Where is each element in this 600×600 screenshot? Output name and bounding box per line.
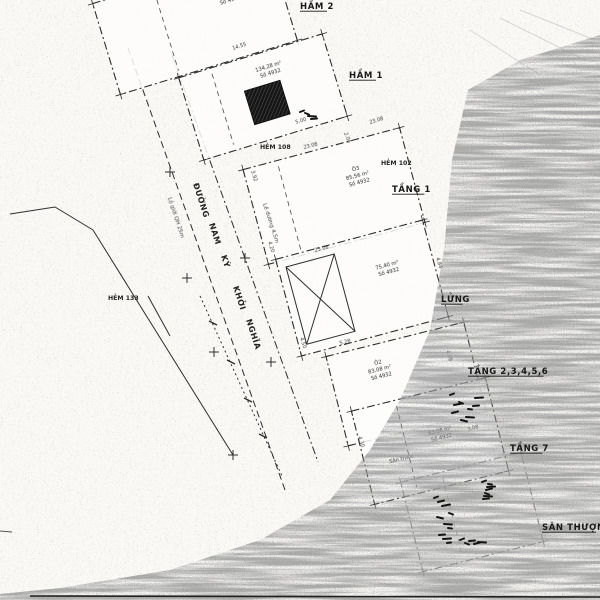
ink-smudge-stroke: [488, 484, 492, 485]
ink-smudge-stroke: [305, 113, 309, 115]
ink-smudge-stroke: [469, 541, 475, 542]
ink-smudge-stroke: [485, 493, 489, 495]
scan-bottom-edge-line: [30, 596, 600, 597]
scanned-document-page: 173,75 m²Số 4975134,28 m²Số 4932Ô385,56 …: [0, 0, 600, 600]
ink-smudge-stroke: [308, 116, 316, 117]
ink-smudge-stroke: [473, 406, 479, 407]
ink-smudge-stroke: [460, 539, 464, 541]
ink-smudge-stroke: [468, 409, 472, 410]
ink-smudge-stroke: [439, 535, 445, 536]
ink-smudge-stroke: [482, 481, 486, 483]
ink-smudge-stroke: [300, 111, 304, 113]
floor-label-san-thuong: SÂN THƯỢNG: [542, 521, 600, 533]
ink-smudge-stroke: [444, 524, 452, 525]
ink-smudge-stroke: [484, 496, 492, 497]
ink-smudge-stroke: [475, 398, 483, 399]
floor-label-ham-2: HẦM 2: [300, 0, 334, 12]
ink-smudge-stroke: [449, 513, 453, 515]
site-plan-drawing: 173,75 m²Số 4975134,28 m²Số 4932Ô385,56 …: [0, 0, 600, 600]
ink-smudge-stroke: [448, 528, 452, 529]
ink-smudge-stroke: [434, 497, 438, 499]
ink-smudge-stroke: [311, 119, 317, 120]
ink-smudge-stroke: [466, 417, 474, 418]
ink-smudge-stroke: [447, 543, 451, 544]
ink-smudge-stroke: [487, 487, 495, 488]
ink-smudge-stroke: [483, 499, 489, 500]
ink-smudge-stroke: [450, 394, 454, 396]
ink-smudge-stroke: [443, 539, 451, 540]
ink-smudge-stroke: [465, 543, 469, 545]
